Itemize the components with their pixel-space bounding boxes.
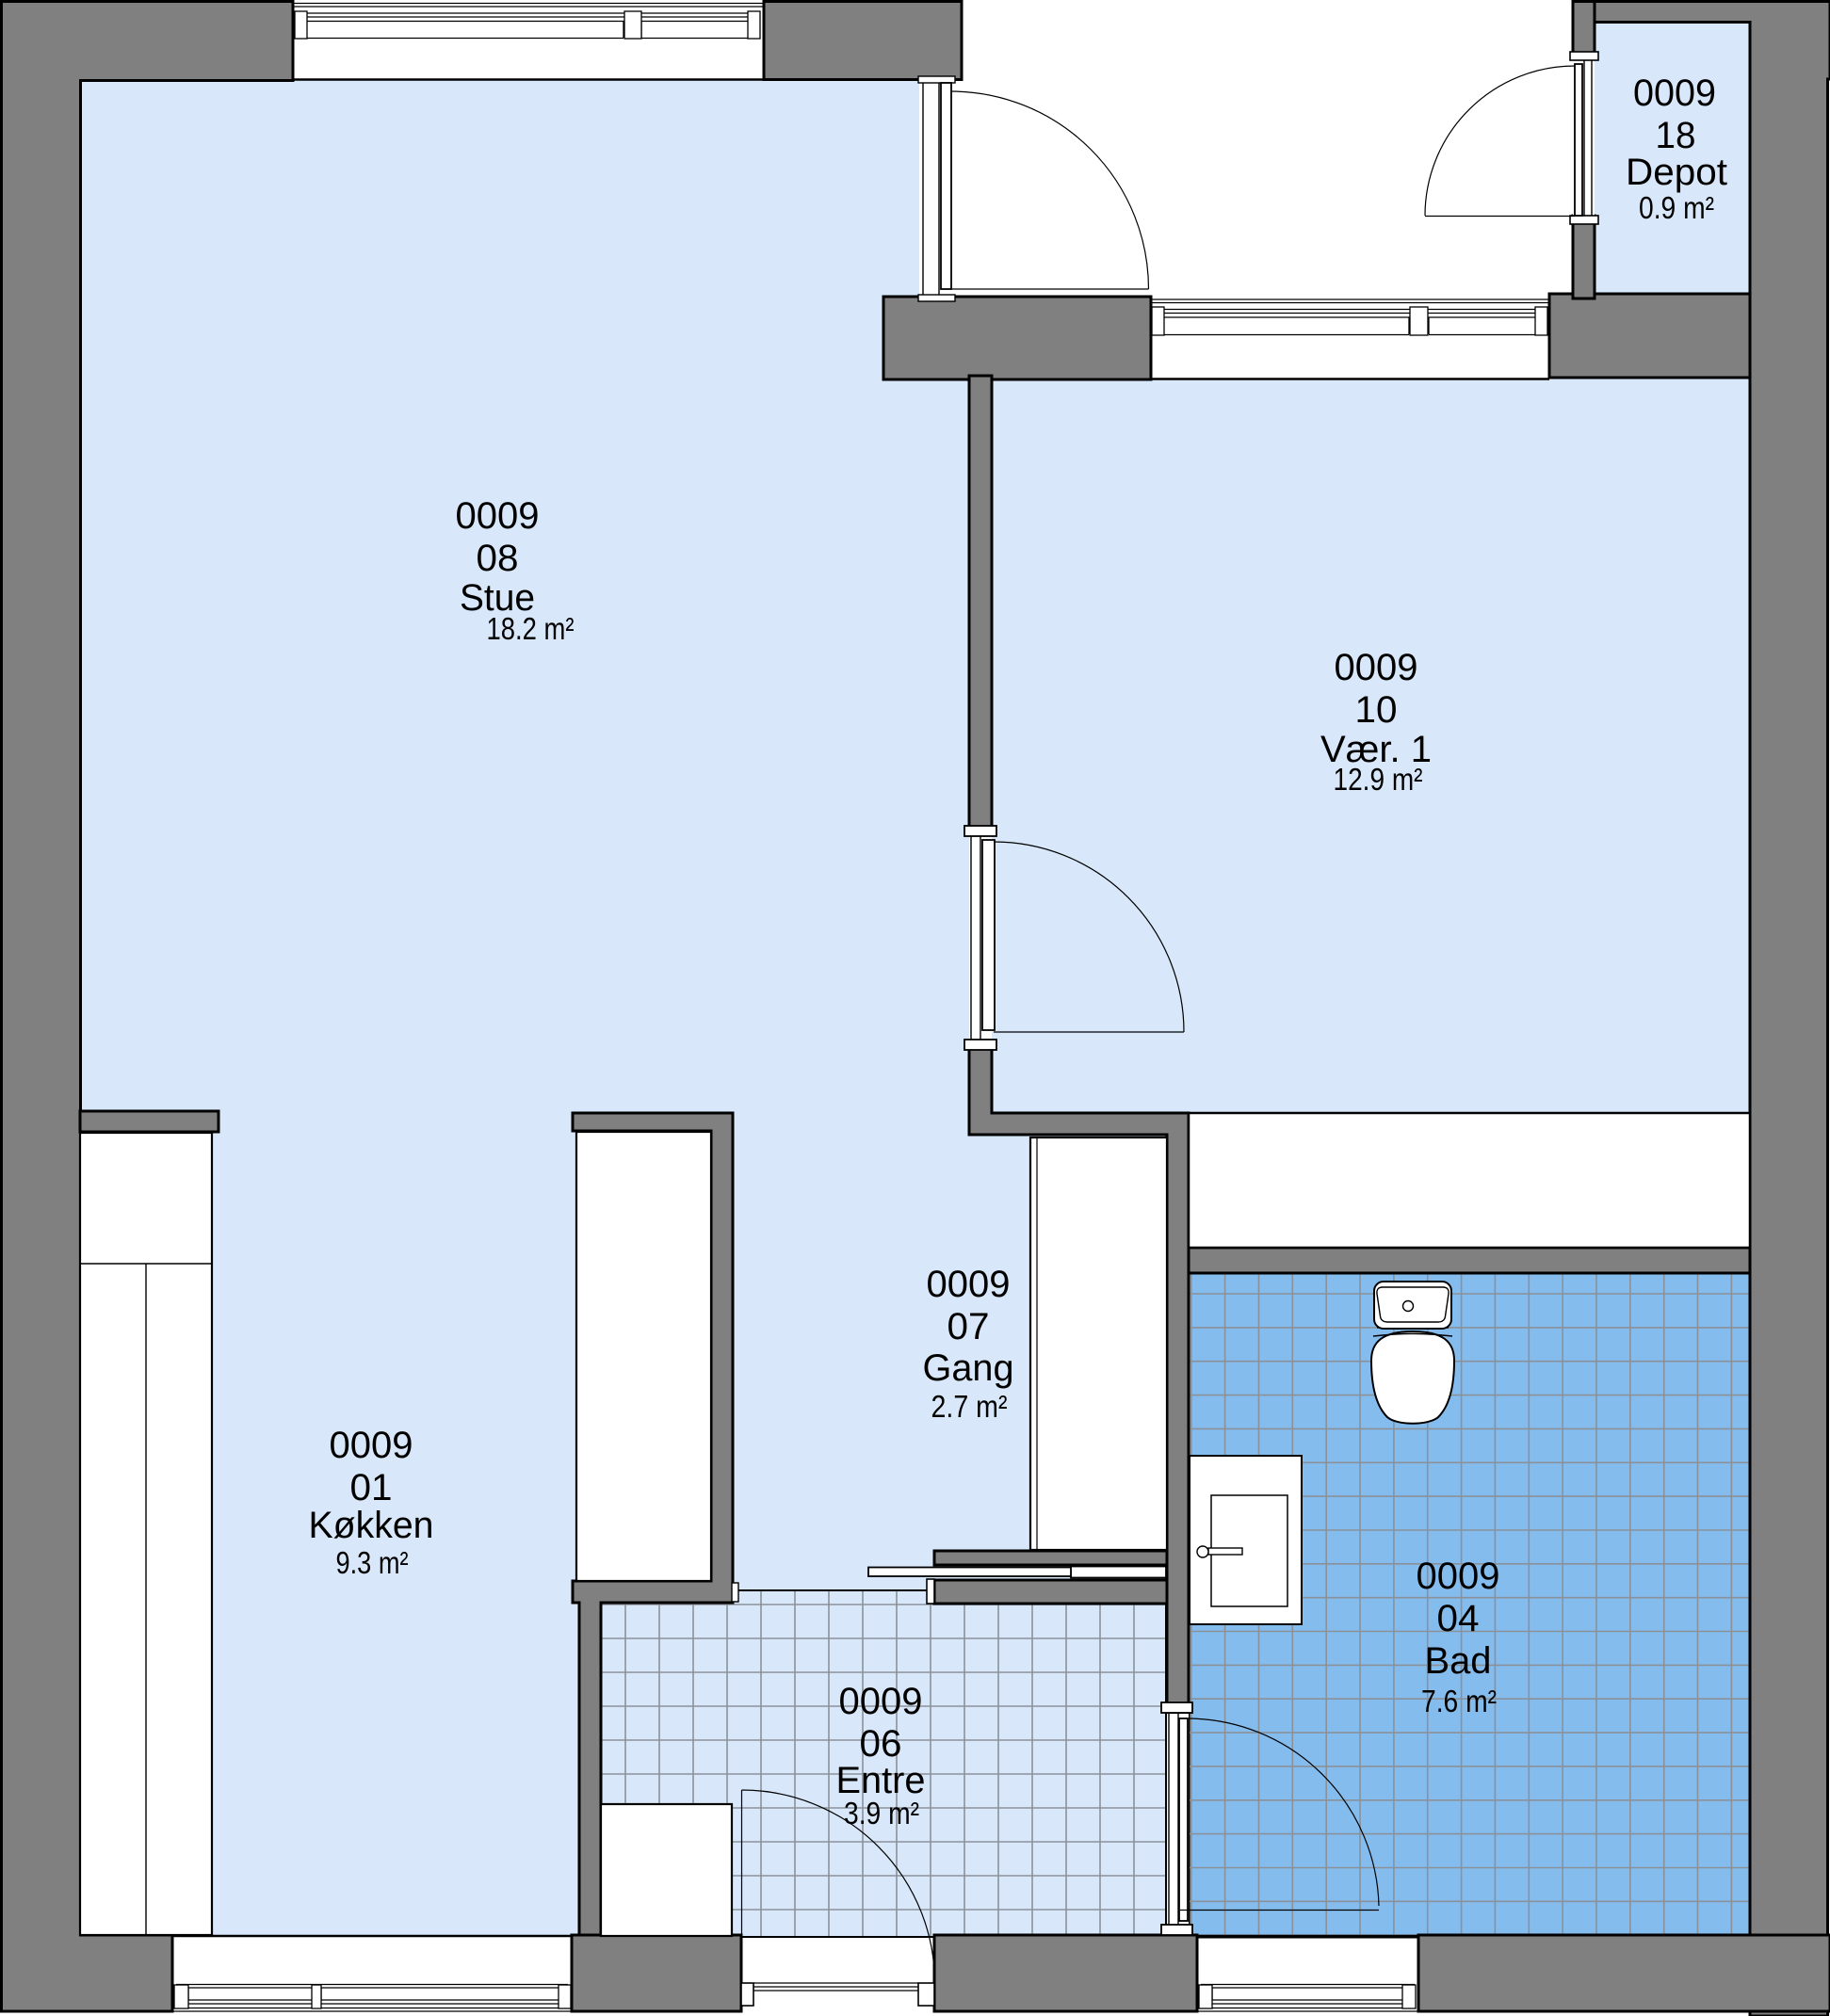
svg-text:0009: 0009: [456, 495, 540, 537]
svg-text:18: 18: [1656, 115, 1696, 156]
svg-text:Bad: Bad: [1425, 1640, 1492, 1682]
svg-text:0009: 0009: [927, 1264, 1011, 1305]
svg-text:06: 06: [860, 1723, 902, 1765]
svg-text:0009: 0009: [1417, 1556, 1500, 1597]
svg-text:12.9 m²: 12.9 m²: [1334, 762, 1423, 797]
svg-text:Gang: Gang: [923, 1347, 1014, 1389]
svg-text:0009: 0009: [1633, 73, 1716, 114]
svg-text:0009: 0009: [839, 1681, 923, 1722]
svg-text:2.7 m²: 2.7 m²: [931, 1389, 1008, 1424]
svg-text:04: 04: [1437, 1598, 1480, 1639]
svg-text:08: 08: [477, 538, 519, 579]
svg-text:3.9 m²: 3.9 m²: [844, 1796, 919, 1831]
svg-text:01: 01: [350, 1467, 393, 1508]
svg-text:10: 10: [1355, 689, 1398, 731]
svg-text:Køkken: Køkken: [309, 1505, 434, 1546]
svg-text:0.9 m²: 0.9 m²: [1639, 190, 1714, 225]
svg-text:07: 07: [947, 1306, 990, 1347]
svg-text:0009: 0009: [330, 1425, 413, 1466]
svg-text:9.3 m²: 9.3 m²: [336, 1545, 409, 1580]
svg-text:0009: 0009: [1335, 647, 1418, 688]
svg-text:Depot: Depot: [1626, 152, 1727, 193]
svg-text:18.2 m²: 18.2 m²: [487, 611, 575, 646]
svg-text:7.6 m²: 7.6 m²: [1421, 1684, 1497, 1718]
